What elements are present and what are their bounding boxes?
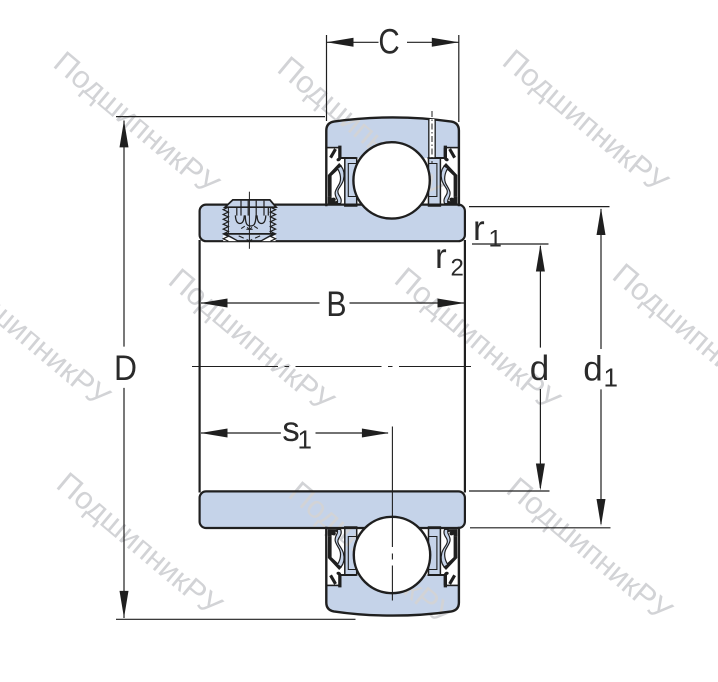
svg-text:D: D	[114, 349, 137, 388]
svg-text:1: 1	[604, 363, 618, 393]
svg-text:C: C	[378, 23, 399, 62]
svg-text:r: r	[473, 209, 485, 248]
svg-text:1: 1	[489, 226, 502, 253]
svg-text:r: r	[435, 237, 447, 276]
svg-text:d: d	[530, 349, 549, 388]
svg-text:B: B	[326, 285, 346, 324]
svg-text:d: d	[583, 350, 602, 389]
svg-text:1: 1	[298, 425, 312, 455]
svg-text:2: 2	[451, 255, 464, 282]
